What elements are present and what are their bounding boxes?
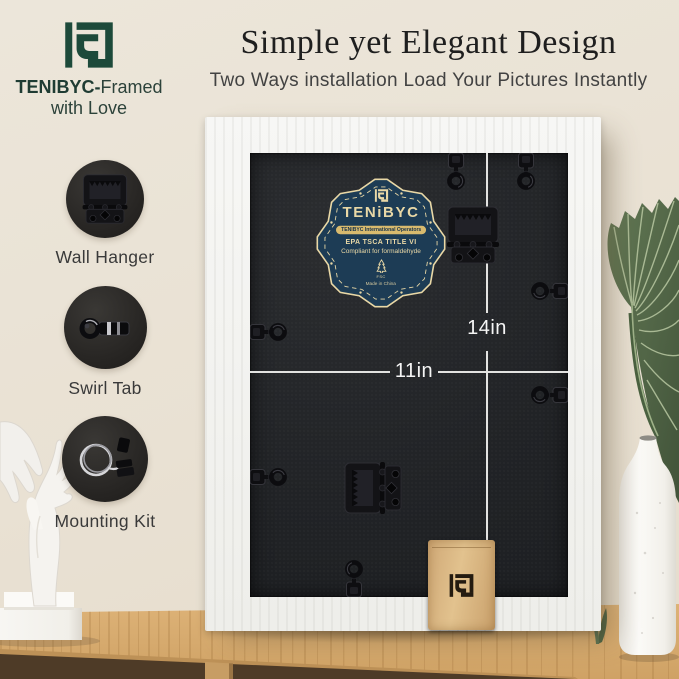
page-subtitle: Two Ways installation Load Your Pictures… — [178, 70, 679, 92]
badge-brand-logo-icon — [374, 188, 389, 203]
hardware-kraft-bag — [428, 540, 495, 630]
picture-frame-back: 14in 11in T — [205, 117, 601, 631]
brand-tagline-line1: TENIBYC-Framed — [0, 77, 178, 98]
badge-compliance-line2: Compliant for formaldehyde — [341, 248, 421, 255]
swirl-tab-icon — [77, 315, 133, 341]
feature-mounting-kit: Mounting Kit — [0, 416, 210, 532]
mounting-kit-icon — [74, 434, 136, 484]
wall-hanger-icon — [82, 174, 128, 224]
swirl-tab-right-upper — [528, 281, 568, 301]
feature-wall-hanger: Wall Hanger — [0, 160, 210, 268]
swirl-tab-left-upper — [250, 322, 290, 342]
swirl-tab-right-lower — [528, 385, 568, 405]
certification-badge: TENiBYC TENIBYC International Operators … — [313, 175, 449, 311]
width-dimension-line — [250, 371, 390, 373]
feature-disc — [66, 160, 144, 238]
brand-logo-block: TENIBYC-Framed with Love — [0, 18, 178, 119]
width-dimension-label: 11in — [374, 360, 454, 383]
width-dimension-line — [438, 371, 568, 373]
frame-backing-board: 14in 11in T — [250, 153, 568, 597]
swirl-tab-top-right — [516, 153, 536, 193]
header-block: Simple yet Elegant Design Two Ways insta… — [178, 24, 679, 92]
product-image: 14in 11in T — [0, 0, 679, 679]
feature-disc — [62, 416, 148, 502]
feature-swirl-tab: Swirl Tab — [0, 286, 210, 399]
sawtooth-hanger-top-icon — [447, 206, 499, 264]
badge-origin-label: Made in China — [366, 281, 396, 286]
vase — [615, 433, 679, 663]
height-dimension-label: 14in — [447, 317, 527, 340]
sawtooth-hanger-bottom-icon — [344, 462, 402, 514]
page-title: Simple yet Elegant Design — [178, 24, 679, 62]
brand-tagline-line2: with Love — [0, 98, 178, 119]
bag-brand-logo-icon — [448, 572, 475, 599]
badge-cert-label: FSC — [376, 274, 385, 279]
brand-tagline-rest: Framed — [100, 77, 162, 97]
feature-label: Swirl Tab — [0, 378, 210, 399]
swirl-tab-top-left — [446, 153, 466, 193]
fsc-icon — [375, 259, 388, 273]
swirl-tab-bottom-left — [344, 557, 364, 597]
feature-label: Wall Hanger — [0, 247, 210, 268]
feature-label: Mounting Kit — [0, 511, 210, 532]
badge-compliance-line1: EPA TSCA TITLE VI — [345, 239, 416, 246]
badge-banner: TENIBYC International Operators — [336, 226, 426, 235]
swirl-tab-left-lower — [250, 467, 290, 487]
badge-brand-name: TENiBYC — [342, 204, 419, 221]
brand-name: TENIBYC- — [15, 77, 100, 97]
brand-logo-icon — [62, 18, 116, 72]
feature-disc — [64, 286, 147, 369]
